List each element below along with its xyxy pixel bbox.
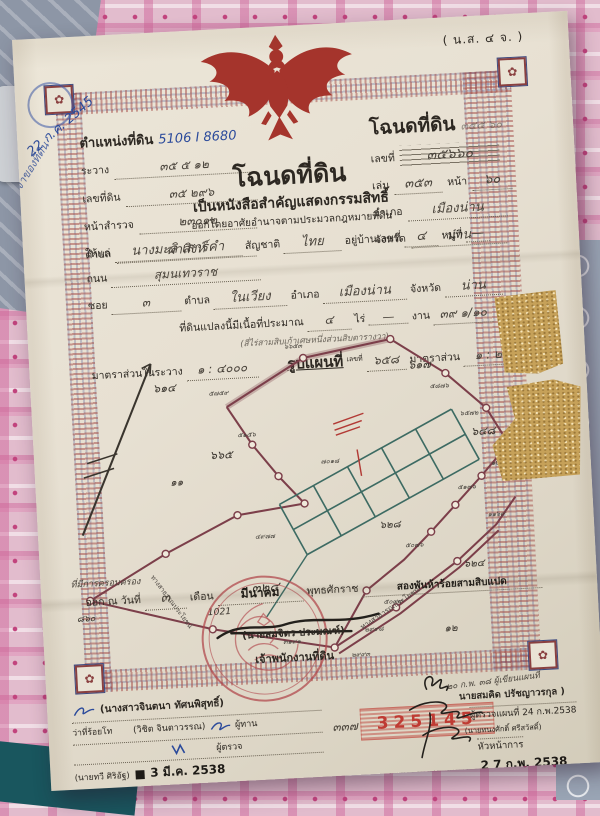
ngan-value: — xyxy=(368,309,409,326)
era-label: พุทธศักราช xyxy=(306,583,358,598)
road-value: สุมนเทวราช xyxy=(110,260,261,288)
svg-text:๔๙๗๗: ๔๙๗๗ xyxy=(255,532,276,541)
deed-page-value: ๖๐ xyxy=(472,167,513,191)
svg-text:๕๑๕๖: ๕๑๕๖ xyxy=(237,430,257,439)
grantee-province-value: น่าน xyxy=(444,273,503,298)
position-title-label: ตำแหน่งที่ดิน xyxy=(79,133,154,152)
svg-text:๖๕๗๒: ๖๕๗๒ xyxy=(460,408,480,417)
month-label: เดือน xyxy=(189,590,214,603)
tambon-value: ในเวียง xyxy=(213,284,288,310)
deed-block-title: โฉนดที่ดิน xyxy=(369,113,456,139)
checker-role: ผู้ตรวจ xyxy=(216,741,243,752)
svg-text:๖๔๘: ๖๔๘ xyxy=(471,424,497,438)
svg-text:๖๑๗: ๖๑๗ xyxy=(408,358,433,372)
deed-no-value: ๓๕๖๖๐ xyxy=(399,141,500,168)
grantee-amphoe-label: อำเภอ xyxy=(290,288,320,302)
soi-label: ซอย xyxy=(88,299,108,312)
svg-text:๘๖๐: ๘๖๐ xyxy=(77,613,96,625)
svg-text:๖๒๘: ๖๒๘ xyxy=(379,518,402,531)
serial-hand-number: ๓๓๗ xyxy=(332,717,358,737)
field-label: ระวาง xyxy=(81,164,110,177)
clerk-name: (นางสาวจินตนา ทัศนพิสุทธิ์) xyxy=(100,698,225,715)
field-label: หน้าสำรวจ xyxy=(84,219,135,234)
deed-pencil-note: ๓๕๕ ๖๐ xyxy=(460,117,502,132)
moo-label: หมู่ที่ xyxy=(441,229,462,242)
tambon-label: ตำบล xyxy=(184,294,210,307)
rai-label: ไร่ xyxy=(354,313,366,326)
svg-text:๑๒: ๑๒ xyxy=(444,622,458,635)
svg-text:๕๑๗๖: ๕๑๗๖ xyxy=(457,482,477,491)
svg-text:๕๗๕๙: ๕๗๕๙ xyxy=(208,389,229,398)
svg-text:๗๐๑๘: ๗๐๑๘ xyxy=(321,457,341,466)
date-stamp-left: 3 มี.ค. 2538 xyxy=(150,762,226,780)
deed-page-label: หน้า xyxy=(447,175,468,188)
clerk-signature xyxy=(71,703,98,718)
footer-left-block: (นางสาวจินตนา ทัศนพิสุทธิ์) ว่าที่ร้อยโท… xyxy=(71,691,325,787)
grantee-province-label: จังหวัด xyxy=(410,282,442,296)
rank-label: ว่าที่ร้อยโท xyxy=(72,727,112,739)
svg-text:๖๒๔: ๖๒๔ xyxy=(463,557,486,570)
stamp-square-icon xyxy=(135,770,144,779)
address-value: ๔ xyxy=(404,224,439,248)
moo-value: — xyxy=(465,225,490,242)
corner-rosette-icon: ✿ xyxy=(498,57,527,86)
svg-text:๖๖๕๓: ๖๖๕๓ xyxy=(284,342,303,351)
svg-text:๕๐๗๖: ๕๐๗๖ xyxy=(405,540,424,549)
road-label: ถนน xyxy=(86,272,107,285)
reviewer-role: ผู้ทาน xyxy=(235,719,258,730)
address-label: อยู่บ้านเลขที่ xyxy=(344,232,401,247)
checker-signature xyxy=(169,742,188,757)
field-label: เลขที่ดิน xyxy=(82,192,121,206)
reviewer-name: (วิชิต จินตาวรรณ) xyxy=(133,722,206,736)
position-title-value: 5106 I 8680 xyxy=(158,128,237,147)
svg-text:๖๑๔: ๖๑๔ xyxy=(153,381,178,395)
masking-tape-top xyxy=(494,290,564,376)
nationality-value: ไทย xyxy=(283,229,342,254)
svg-text:๑๑: ๑๑ xyxy=(170,476,184,489)
north-arrow-icon xyxy=(74,364,159,536)
footer-right-block: ๒๐ ก.พ. ๓๘ ผู้เขียนแผนที่ นายสมคิด ปรัชญ… xyxy=(412,667,597,781)
given-label: ให้แก่ xyxy=(85,247,111,260)
ngan-label: งาน xyxy=(412,310,431,323)
svg-text:๕๘๗๖: ๕๘๗๖ xyxy=(429,381,450,390)
form-code: ( น.ส. ๔ จ. ) xyxy=(442,27,524,50)
nationality-label: สัญชาติ xyxy=(245,238,281,252)
svg-text:๑๑๖๙: ๑๑๖๙ xyxy=(487,509,506,518)
red-pen-marks xyxy=(333,413,367,477)
svg-text:๖๖๕: ๖๖๕ xyxy=(209,448,234,462)
issued-label: ออก ณ วันที่ xyxy=(85,594,141,609)
photo-of-land-deed: { "photo": { "corner_date": "22 ก.ค. 254… xyxy=(0,0,600,800)
issued-day: ๓ xyxy=(144,586,187,611)
reviewer-signature xyxy=(208,718,233,733)
checker-name: (นายทวี ศิริอัฐ) xyxy=(74,771,129,784)
soi-value: ๓ xyxy=(110,292,181,316)
grantee-amphoe-value: เมืองน่าน xyxy=(322,278,407,304)
